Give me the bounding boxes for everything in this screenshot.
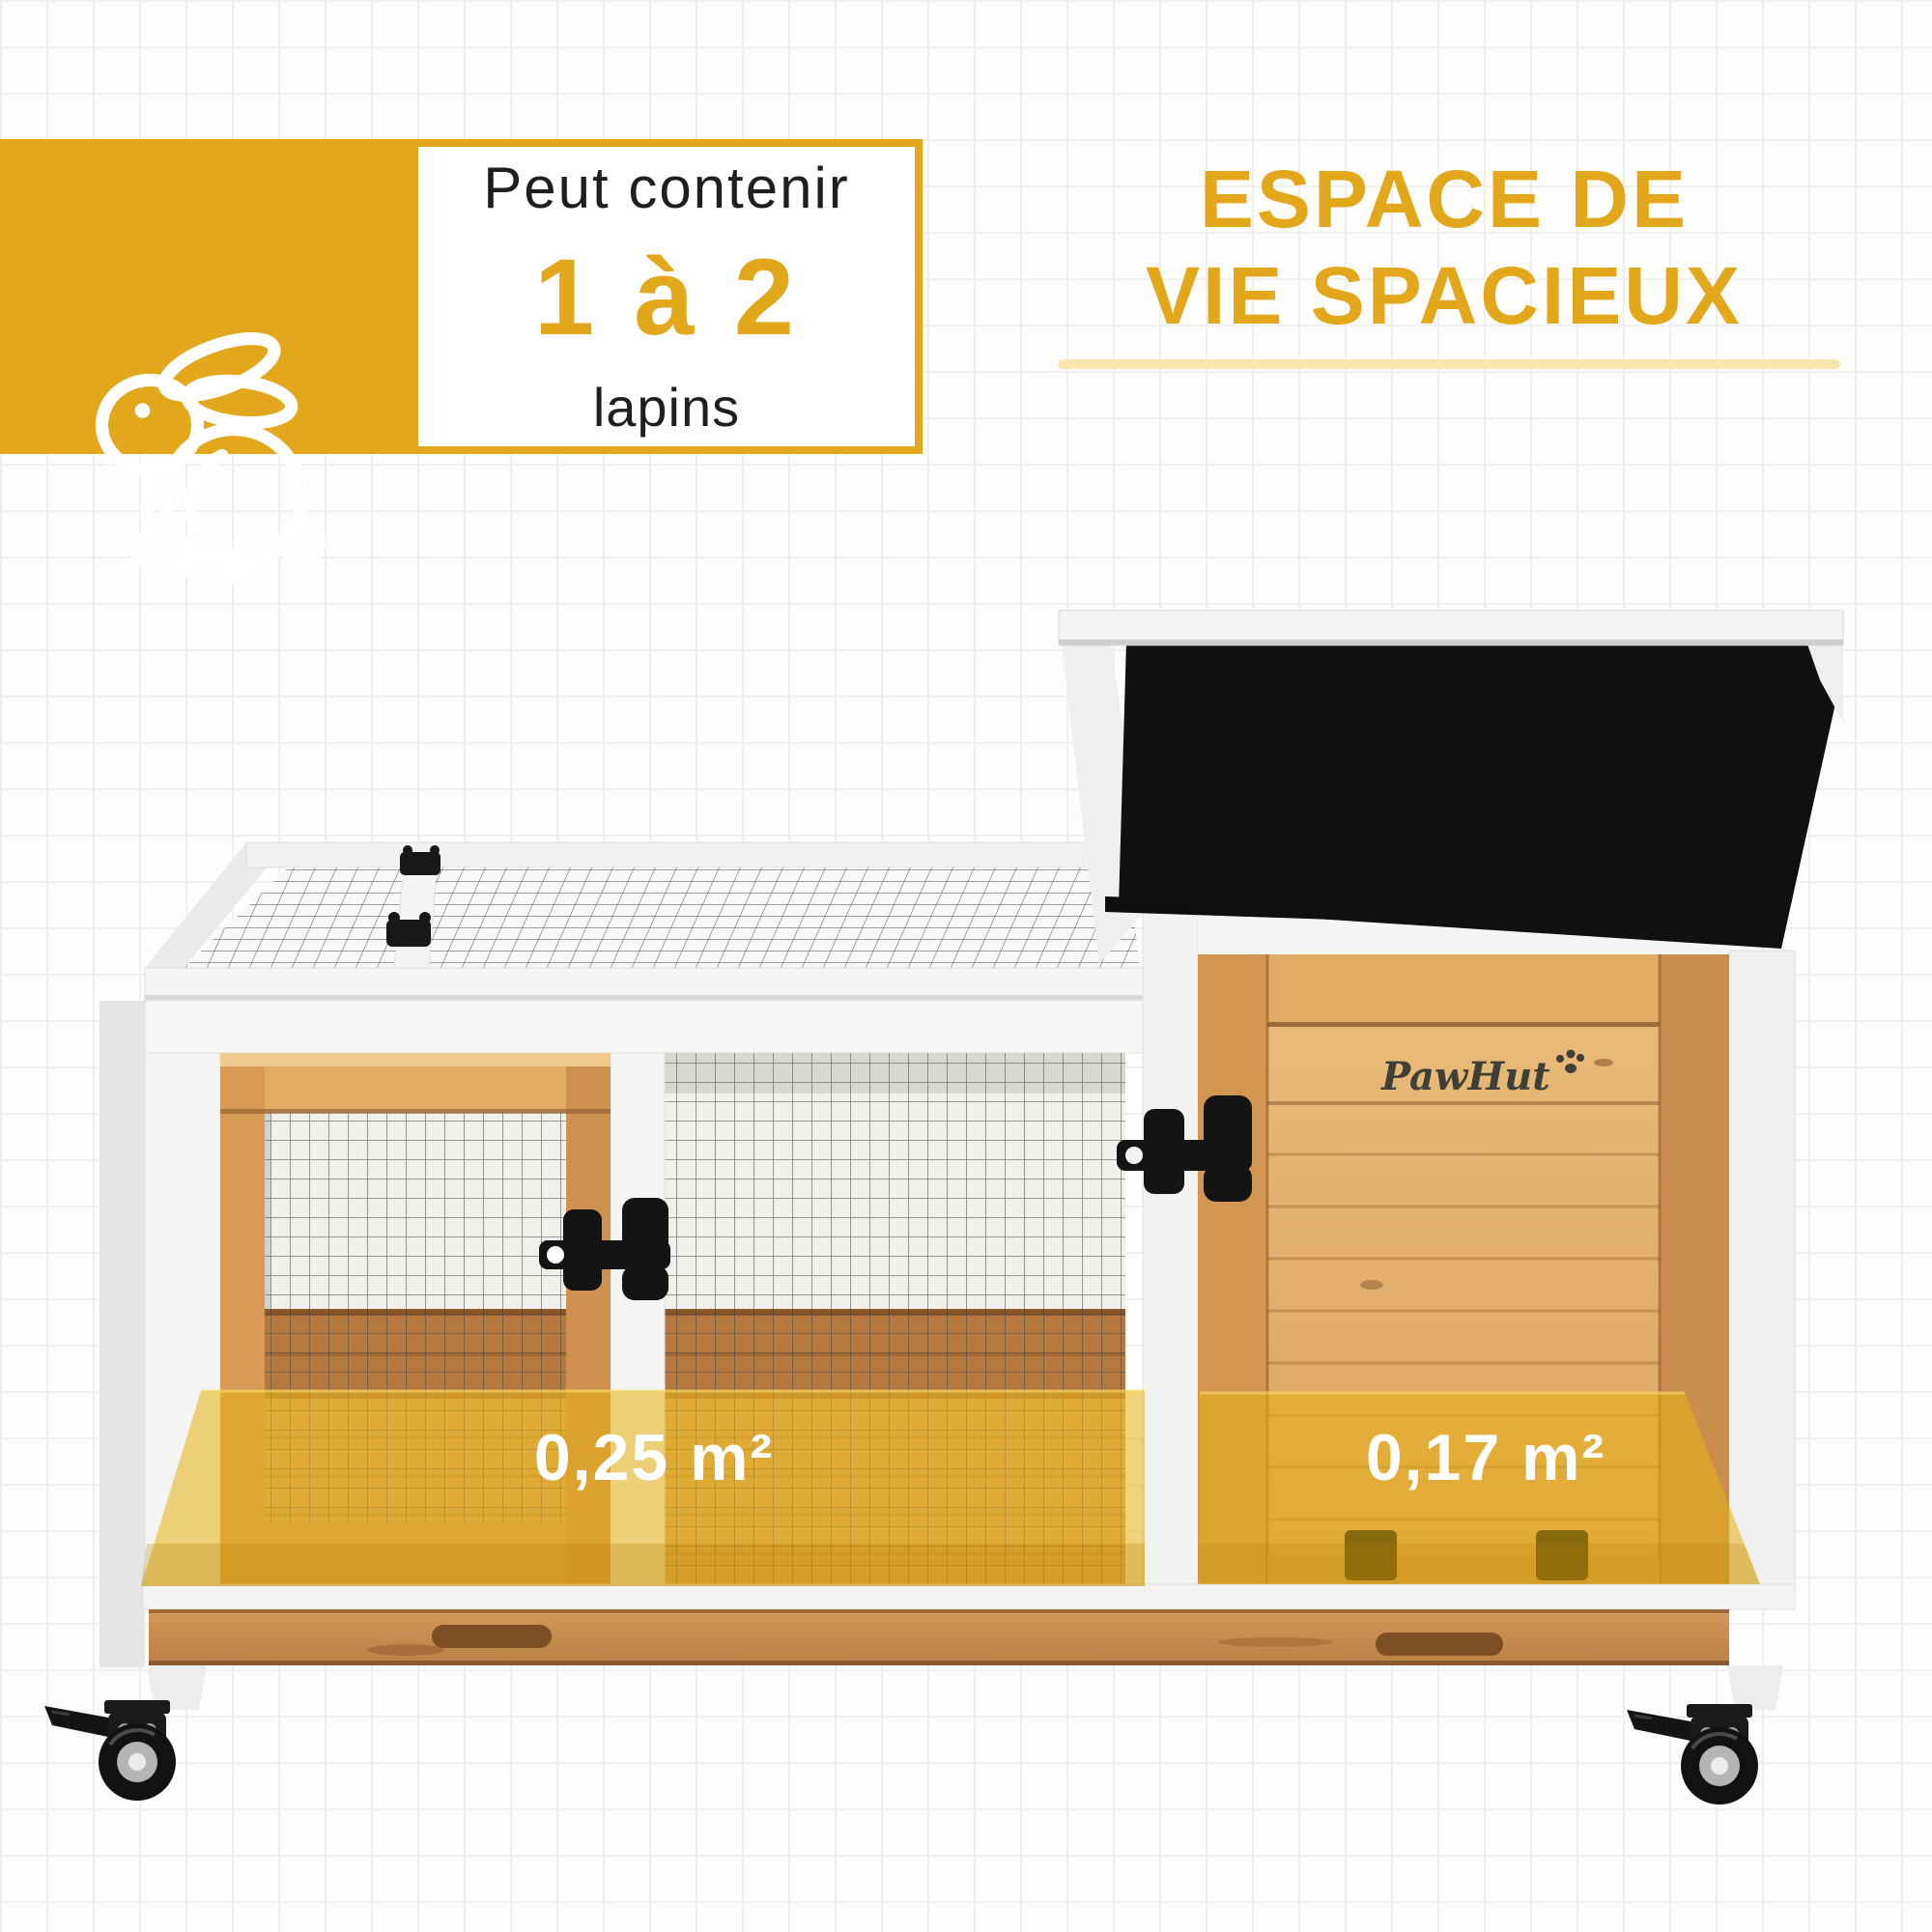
area-label-left: 0,25 m² (451, 1420, 857, 1495)
cage-top (145, 842, 1145, 1001)
roof-panel (1119, 641, 1843, 949)
brand-logo: PawHut (1381, 1045, 1594, 1107)
caster-wheel-icon (1627, 1704, 1758, 1804)
roof (1059, 611, 1843, 949)
hutch-illustration (0, 0, 1932, 1932)
product-infographic: Peut contenir 1 à 2 lapins ESPACE DE VIE… (0, 0, 1932, 1932)
tray-handle (432, 1625, 552, 1648)
area-label-right: 0,17 m² (1283, 1420, 1689, 1495)
brand-logo-text: PawHut (1381, 1054, 1550, 1099)
tray-handle (1376, 1633, 1503, 1656)
paw-print-icon (1552, 1049, 1585, 1082)
caster-wheel-icon (44, 1700, 176, 1801)
base (44, 1584, 1795, 1804)
